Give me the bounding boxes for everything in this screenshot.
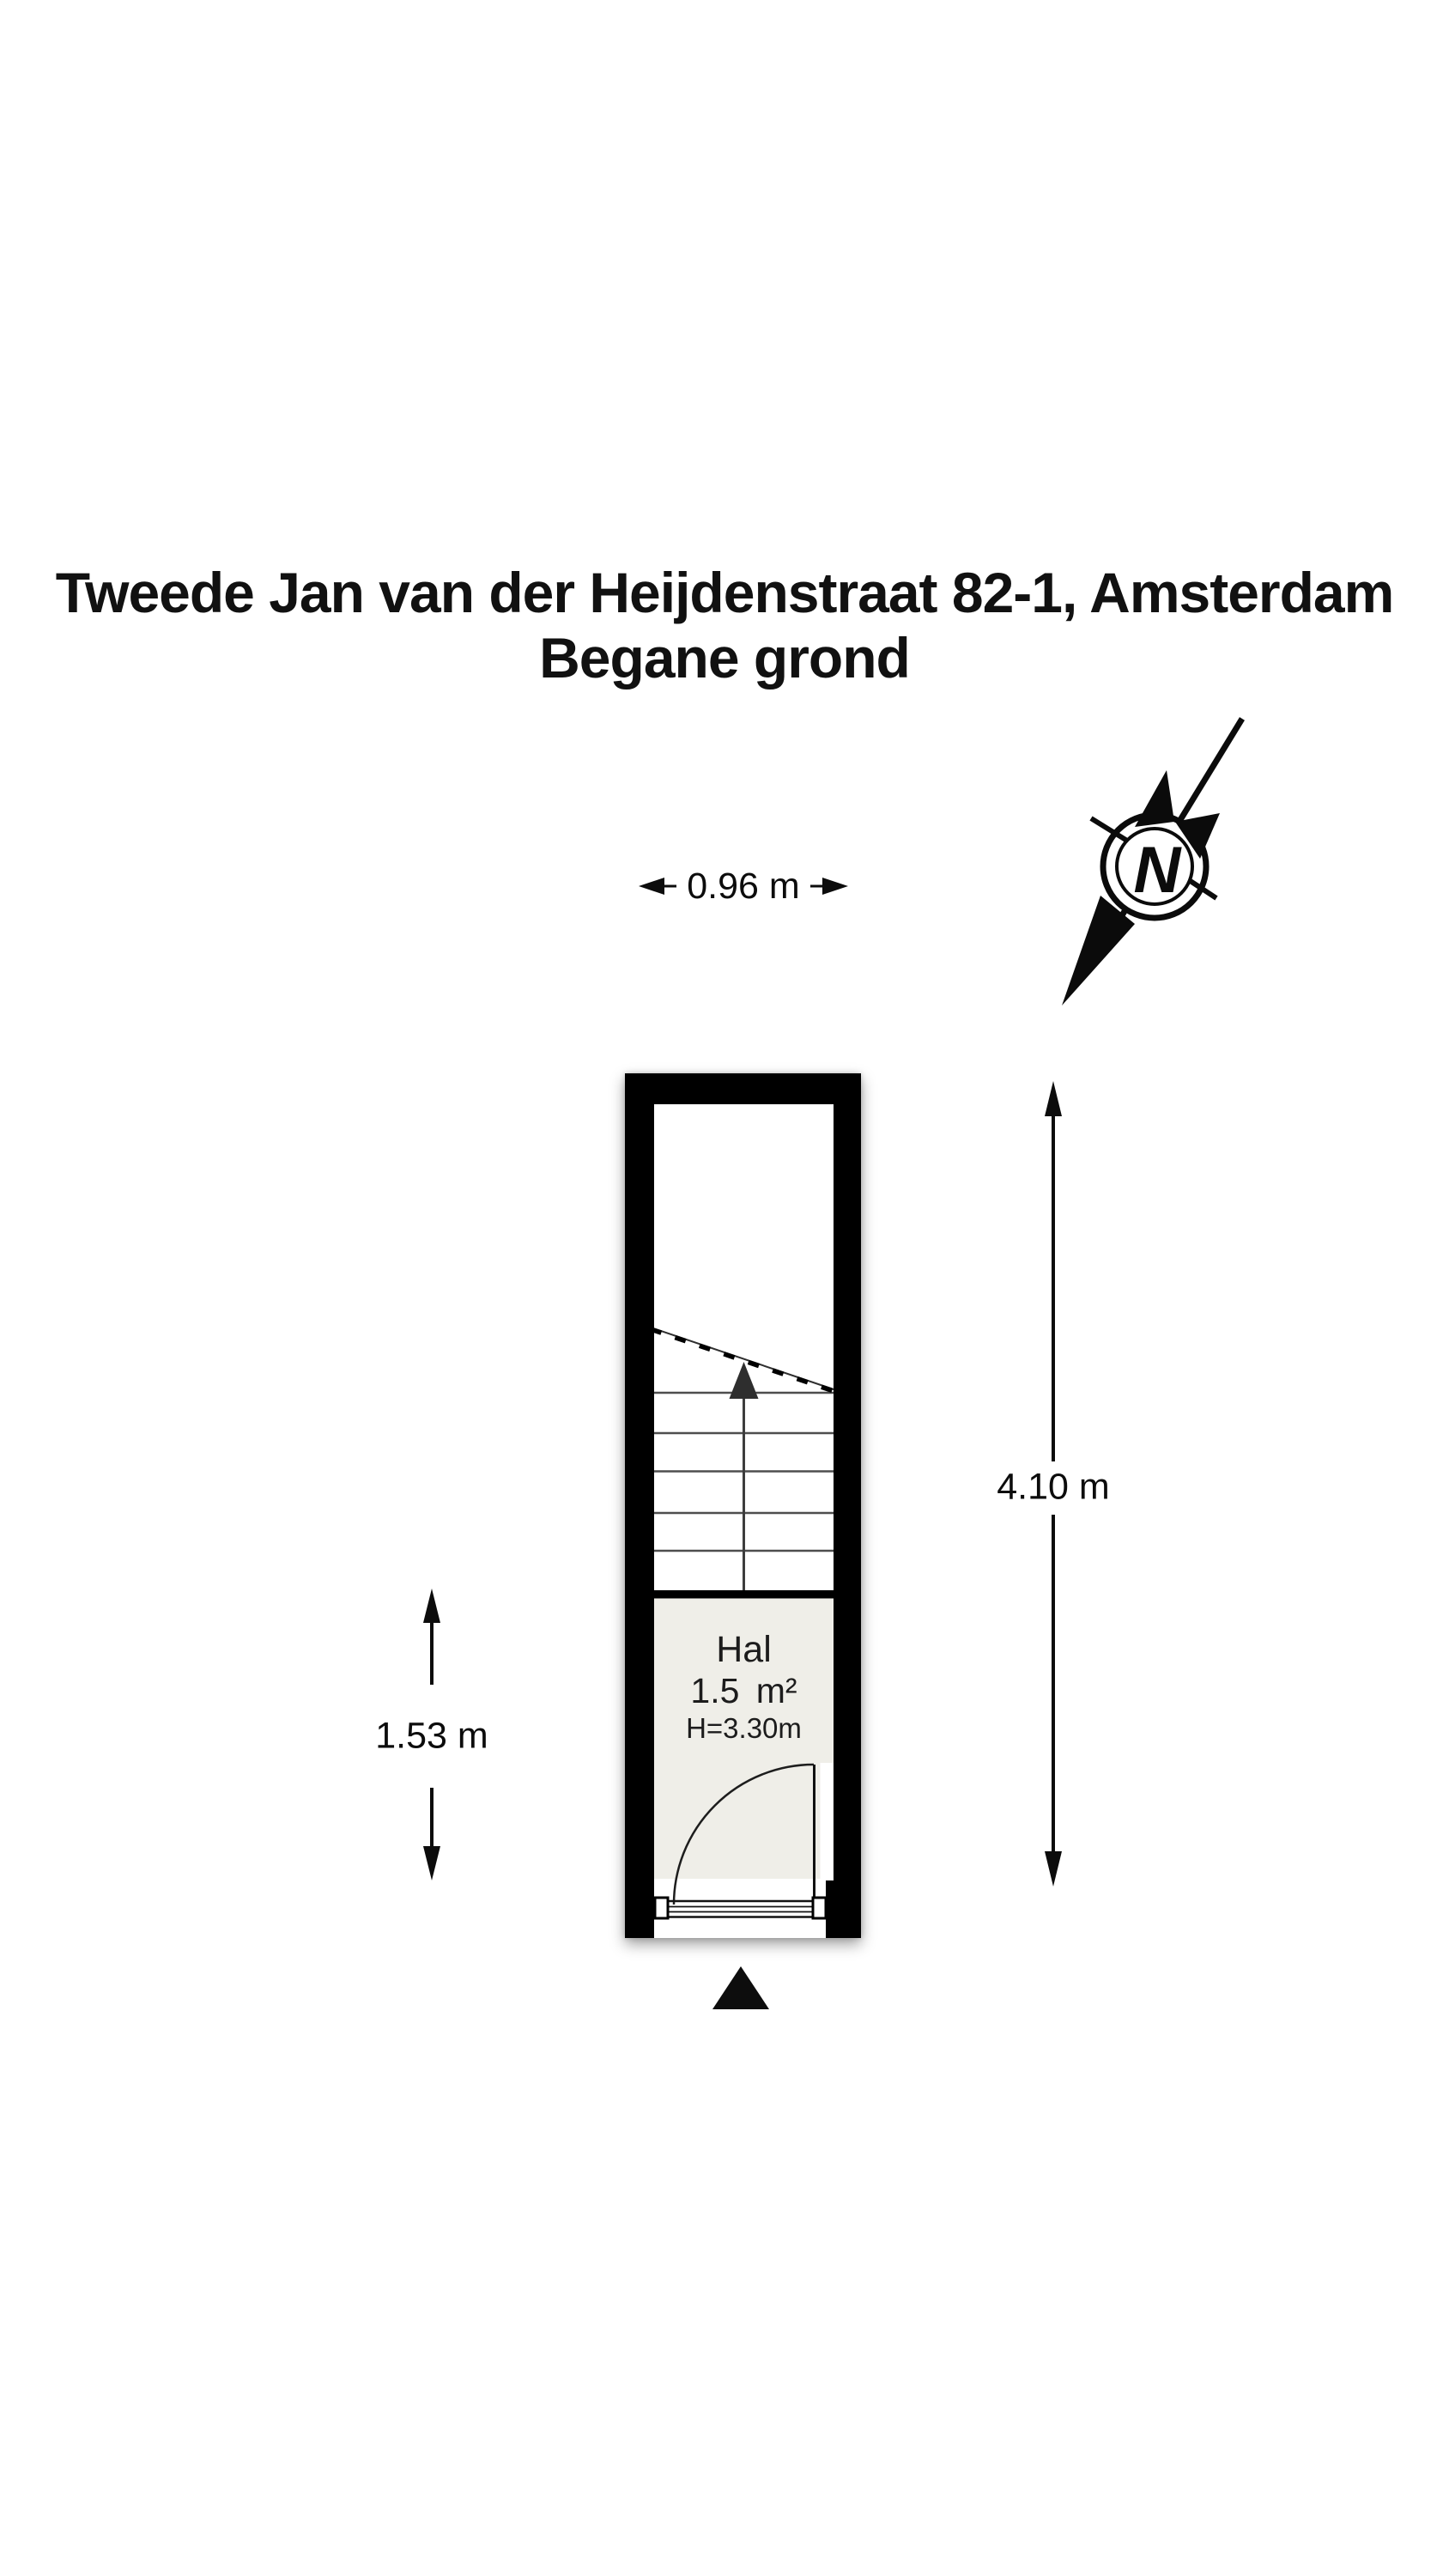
title-floor: Begane grond bbox=[0, 625, 1449, 690]
title-address: Tweede Jan van der Heijdenstraat 82-1, A… bbox=[0, 560, 1449, 625]
wall-left bbox=[625, 1073, 654, 1938]
floorplan-page: Tweede Jan van der Heijdenstraat 82-1, A… bbox=[0, 0, 1449, 2576]
dimension-right-label: 4.10 m bbox=[991, 1467, 1114, 1509]
stair-direction-arrow-icon bbox=[730, 1362, 759, 1399]
room-ceiling-height: H=3.30m bbox=[654, 1710, 834, 1747]
dimension-top-width-label: 0.96 m bbox=[687, 866, 799, 908]
door-jamb-left bbox=[655, 1898, 668, 1918]
room-area: 1.5 m² bbox=[654, 1671, 834, 1710]
page-title: Tweede Jan van der Heijdenstraat 82-1, A… bbox=[0, 560, 1449, 690]
arrow-right-icon bbox=[810, 876, 848, 896]
compass-north-point bbox=[1135, 770, 1174, 827]
entrance-triangle-icon bbox=[712, 1966, 769, 2009]
wall-stair-hall-separator bbox=[654, 1590, 834, 1599]
threshold bbox=[668, 1901, 813, 1917]
compass-north-letter: N bbox=[1134, 834, 1183, 907]
room-name: Hal bbox=[654, 1628, 834, 1671]
wall-right bbox=[834, 1073, 861, 1881]
arrow-left-icon bbox=[639, 876, 676, 896]
floorplan-drawing bbox=[625, 1073, 861, 1938]
door-reveal bbox=[821, 1763, 834, 1901]
door-jamb-right bbox=[813, 1898, 826, 1918]
floorplan: Hal 1.5 m² H=3.30m bbox=[625, 1073, 861, 1938]
dimension-top-width: 0.96 m bbox=[591, 860, 896, 912]
wall-right-lower bbox=[826, 1880, 861, 1938]
wall-top bbox=[625, 1073, 861, 1104]
dimension-left-label: 1.53 m bbox=[370, 1716, 493, 1758]
room-label: Hal 1.5 m² H=3.30m bbox=[654, 1628, 834, 1747]
north-compass-icon: N bbox=[1013, 687, 1313, 1030]
